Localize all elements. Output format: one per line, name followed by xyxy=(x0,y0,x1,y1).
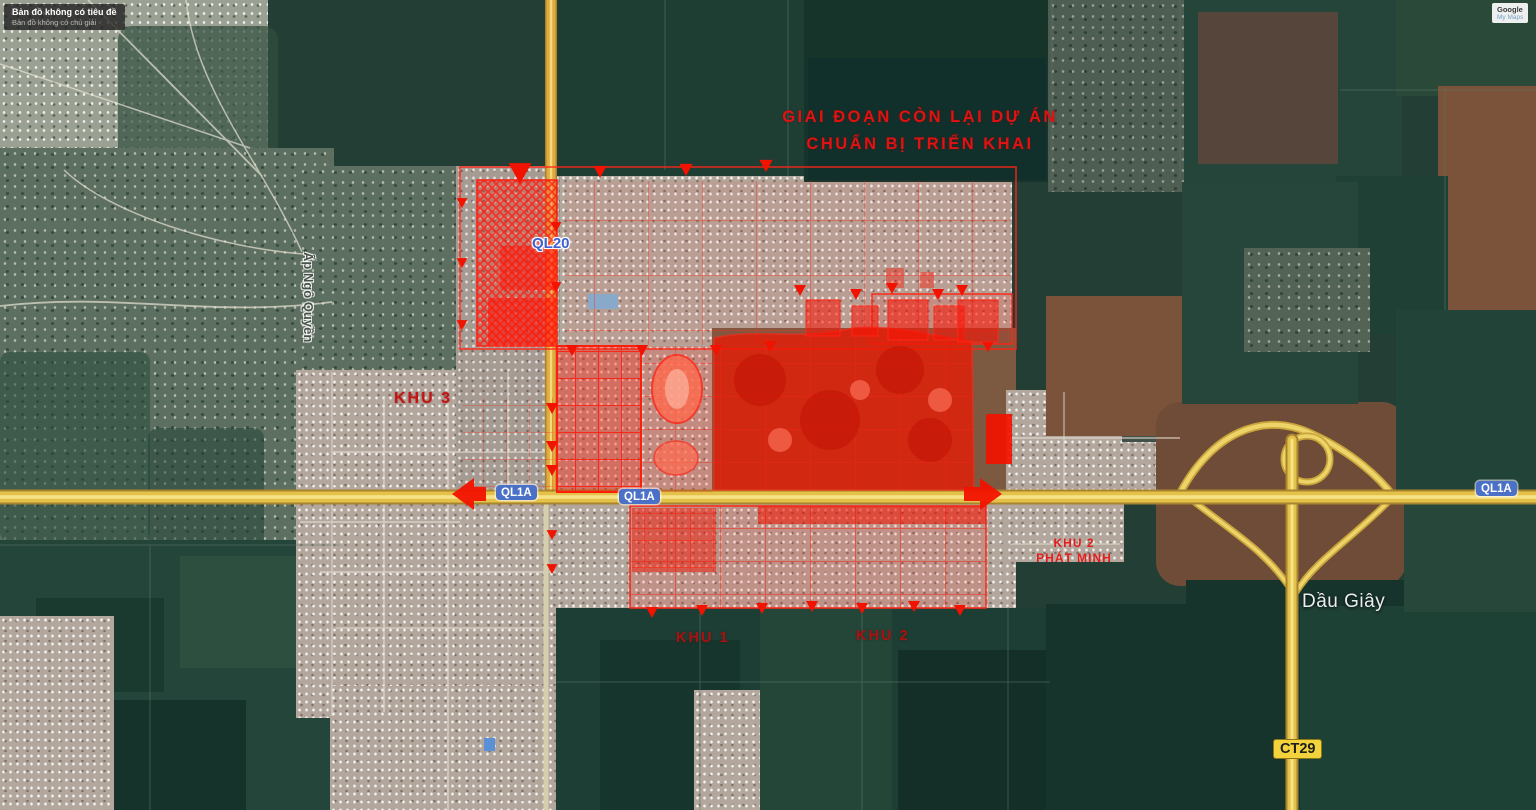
zone2b-label-line1: KHU 2 xyxy=(1014,536,1134,551)
map-graphics-layer xyxy=(0,0,1536,810)
ql1a-shield-west1: QL1A xyxy=(496,485,537,500)
zone3-label: KHU 3 xyxy=(394,390,452,408)
zone1-label: KHU 1 xyxy=(676,630,730,646)
google-card-subtext: My Maps xyxy=(1497,14,1523,21)
ql1a-shield-east: QL1A xyxy=(1476,481,1517,496)
google-attribution-card: Google My Maps xyxy=(1492,3,1528,23)
phase-annotation-line2: CHUẨN BỊ TRIỂN KHAI xyxy=(770,131,1070,158)
phase-annotation: GIAI ĐOẠN CÒN LẠI DỰ ÁN CHUẨN BỊ TRIỂN K… xyxy=(770,104,1070,158)
google-logo-text: Google xyxy=(1497,5,1523,14)
ql1a-shield-west2: QL1A xyxy=(619,489,660,504)
zone2b-label-line2: PHÁT MINH xyxy=(1014,551,1134,566)
ap-ngo-quyen-street-label: Ấp Ngô Quyền xyxy=(301,252,316,342)
ql20-road-label: QL20 xyxy=(532,235,570,252)
satellite-map-canvas[interactable]: GIAI ĐOẠN CÒN LẠI DỰ ÁN CHUẨN BỊ TRIỂN K… xyxy=(0,0,1536,810)
map-title-watermark: Bản đồ không có tiêu đề Bản đồ không có … xyxy=(4,4,125,30)
ct29-shield: CT29 xyxy=(1273,739,1322,759)
map-subtitle-text: Bản đồ không có chú giải xyxy=(12,18,117,27)
map-title-text: Bản đồ không có tiêu đề xyxy=(12,7,117,17)
zone2b-label: KHU 2 PHÁT MINH xyxy=(1014,536,1134,566)
zone2-label: KHU 2 xyxy=(856,628,910,644)
dau-giay-place-label: Dầu Giây xyxy=(1302,591,1385,613)
phase-annotation-line1: GIAI ĐOẠN CÒN LẠI DỰ ÁN xyxy=(770,104,1070,131)
project-overlay xyxy=(452,167,1016,608)
